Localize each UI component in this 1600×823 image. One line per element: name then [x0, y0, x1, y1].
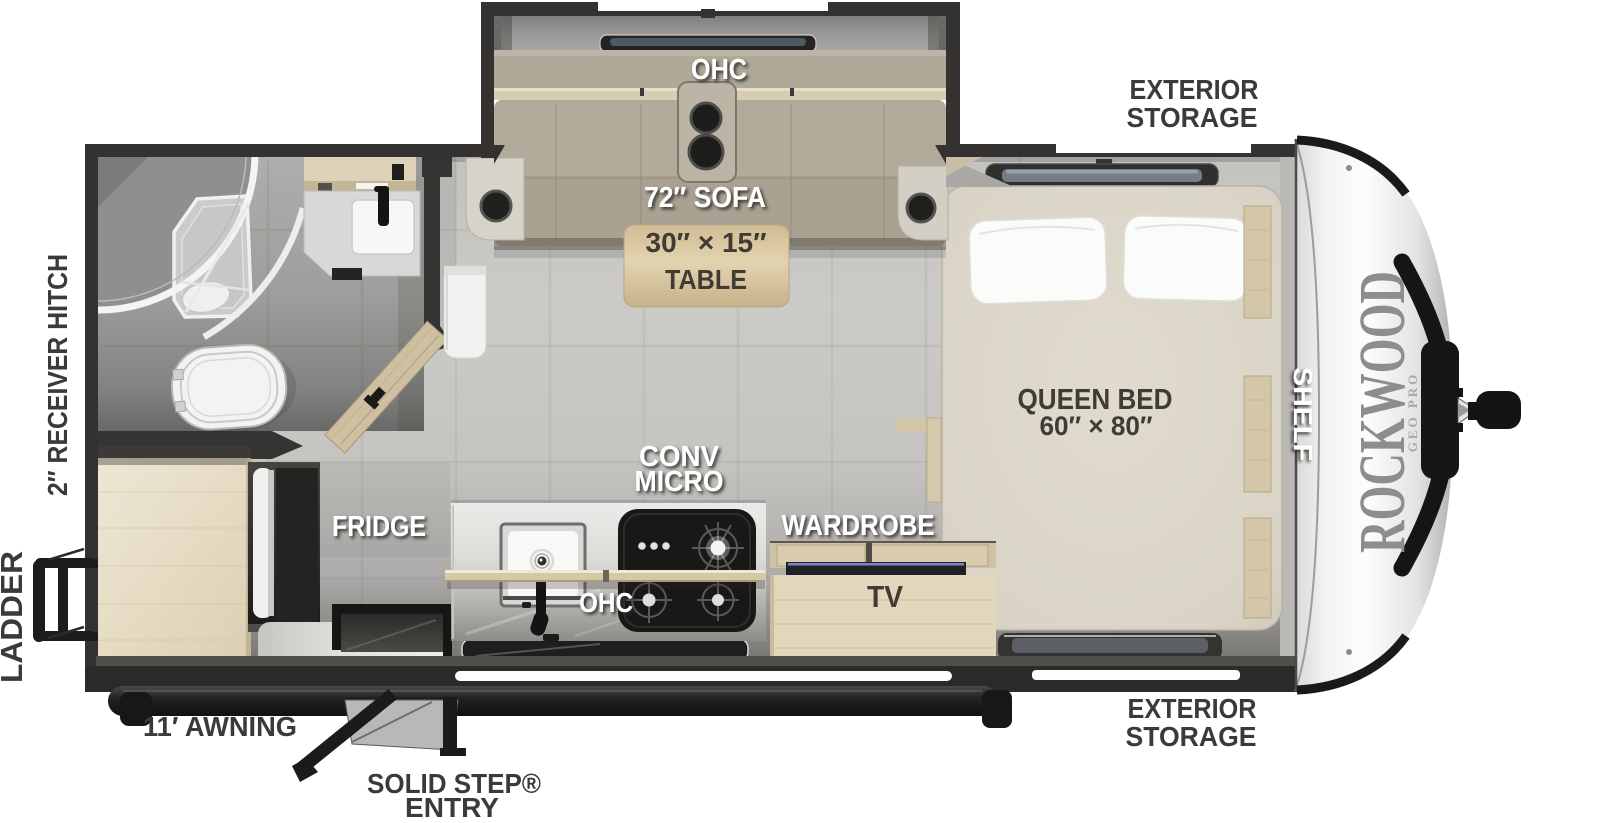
svg-text:LADDER: LADDER — [0, 551, 29, 683]
svg-text:WARDROBE: WARDROBE — [782, 510, 935, 542]
svg-text:MICRO: MICRO — [635, 466, 724, 498]
svg-text:2″ RECEIVER HITCH: 2″ RECEIVER HITCH — [42, 254, 73, 496]
svg-text:FRIDGE: FRIDGE — [332, 511, 426, 543]
svg-text:STORAGE: STORAGE — [1127, 102, 1258, 133]
svg-text:GEO PRO: GEO PRO — [1405, 372, 1420, 453]
svg-text:30″ × 15″: 30″ × 15″ — [646, 227, 767, 258]
svg-text:OHC: OHC — [579, 587, 633, 618]
svg-text:SHELF: SHELF — [1288, 367, 1318, 461]
svg-text:TABLE: TABLE — [665, 264, 747, 295]
svg-text:OHC: OHC — [691, 54, 747, 86]
svg-text:EXTERIOR: EXTERIOR — [1128, 693, 1257, 724]
svg-text:60″ × 80″: 60″ × 80″ — [1040, 411, 1153, 441]
svg-text:72″ SOFA: 72″ SOFA — [644, 182, 766, 214]
svg-text:STORAGE: STORAGE — [1126, 721, 1257, 752]
svg-text:11′ AWNING: 11′ AWNING — [143, 711, 297, 742]
svg-text:EXTERIOR: EXTERIOR — [1130, 74, 1259, 105]
svg-text:ENTRY: ENTRY — [405, 792, 499, 818]
svg-text:TV: TV — [867, 579, 903, 614]
